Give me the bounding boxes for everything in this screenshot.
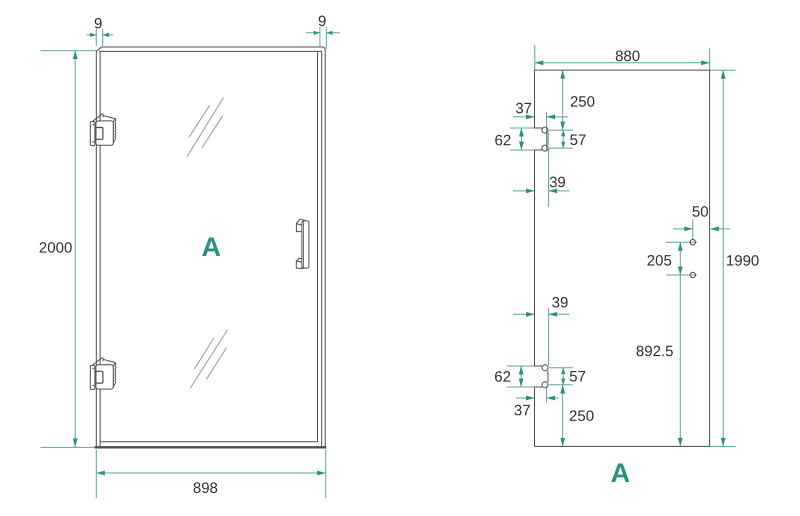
svg-text:880: 880	[615, 48, 640, 65]
svg-text:9: 9	[318, 13, 326, 30]
svg-text:57: 57	[570, 132, 587, 149]
svg-text:2000: 2000	[39, 240, 72, 257]
svg-text:57: 57	[569, 368, 586, 385]
svg-text:A: A	[202, 232, 222, 262]
svg-text:9: 9	[94, 15, 102, 32]
svg-text:62: 62	[495, 132, 512, 149]
svg-text:1990: 1990	[726, 253, 759, 270]
svg-text:62: 62	[494, 369, 511, 386]
svg-text:37: 37	[515, 100, 532, 117]
svg-text:892.5: 892.5	[636, 343, 674, 360]
svg-text:A: A	[611, 458, 631, 488]
svg-text:898: 898	[193, 480, 218, 497]
svg-text:250: 250	[570, 94, 595, 111]
svg-text:205: 205	[647, 253, 672, 270]
svg-text:50: 50	[692, 204, 709, 221]
svg-text:250: 250	[569, 408, 594, 425]
svg-text:39: 39	[549, 174, 566, 191]
svg-text:39: 39	[552, 294, 569, 311]
svg-text:37: 37	[514, 402, 531, 419]
